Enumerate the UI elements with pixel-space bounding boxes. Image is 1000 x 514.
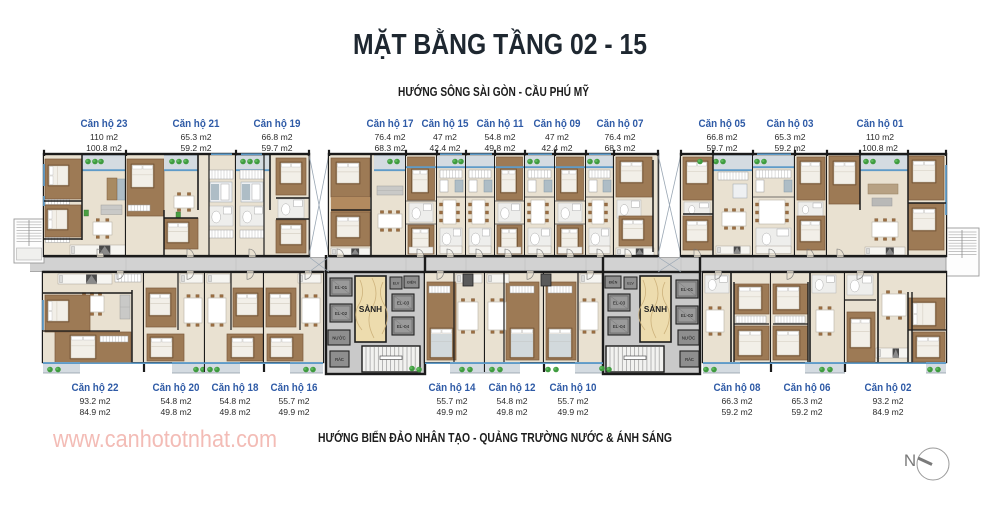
svg-text:Căn hộ 01: Căn hộ 01 (857, 118, 904, 130)
svg-text:EL-02: EL-02 (335, 311, 348, 316)
svg-text:Căn hộ 07: Căn hộ 07 (597, 118, 644, 130)
svg-text:EL-04: EL-04 (397, 324, 410, 329)
svg-text:49.8 m2: 49.8 m2 (496, 407, 527, 417)
svg-text:Căn hộ 05: Căn hộ 05 (699, 118, 746, 130)
svg-text:100.8 m2: 100.8 m2 (862, 143, 898, 153)
svg-text:76.4 m2: 76.4 m2 (374, 132, 405, 142)
svg-text:NƯỜC: NƯỜC (332, 336, 345, 341)
svg-text:76.4 m2: 76.4 m2 (604, 132, 635, 142)
svg-text:49.9 m2: 49.9 m2 (557, 407, 588, 417)
svg-text:47 m2: 47 m2 (545, 132, 569, 142)
svg-text:55.7 m2: 55.7 m2 (557, 396, 588, 406)
svg-text:55.7 m2: 55.7 m2 (436, 396, 467, 406)
svg-text:ĐIỆN: ĐIỆN (407, 280, 416, 285)
svg-text:SẢNH: SẢNH (359, 303, 382, 314)
svg-text:SẢNH: SẢNH (644, 303, 667, 314)
svg-text:MẶT BẰNG TẦNG 02 - 15: MẶT BẰNG TẦNG 02 - 15 (353, 27, 647, 61)
svg-text:N: N (904, 451, 916, 470)
svg-text:55.7 m2: 55.7 m2 (278, 396, 309, 406)
svg-text:47 m2: 47 m2 (433, 132, 457, 142)
svg-text:Căn hộ 14: Căn hộ 14 (429, 382, 477, 394)
svg-text:EL-03: EL-03 (613, 300, 626, 305)
svg-text:54.8 m2: 54.8 m2 (496, 396, 527, 406)
svg-text:65.3 m2: 65.3 m2 (791, 396, 822, 406)
svg-text:Căn hộ 09: Căn hộ 09 (534, 118, 581, 130)
svg-text:Căn hộ 21: Căn hộ 21 (173, 118, 220, 130)
svg-text:ĐIỆN: ĐIỆN (609, 280, 618, 285)
svg-text:ELV: ELV (627, 282, 634, 286)
svg-text:Căn hộ 20: Căn hộ 20 (153, 382, 200, 394)
svg-text:66.3 m2: 66.3 m2 (721, 396, 752, 406)
svg-text:66.8 m2: 66.8 m2 (261, 132, 292, 142)
svg-text:Căn hộ 06: Căn hộ 06 (784, 382, 831, 394)
svg-text:59.7 m2: 59.7 m2 (706, 143, 737, 153)
svg-text:Căn hộ 12: Căn hộ 12 (489, 382, 536, 394)
svg-text:110 m2: 110 m2 (866, 132, 894, 142)
svg-text:59.2 m2: 59.2 m2 (774, 143, 805, 153)
svg-text:EL-03: EL-03 (397, 300, 410, 305)
svg-text:59.2 m2: 59.2 m2 (791, 407, 822, 417)
svg-text:Căn hộ 10: Căn hộ 10 (550, 382, 597, 394)
svg-text:49.8 m2: 49.8 m2 (160, 407, 191, 417)
svg-text:66.8 m2: 66.8 m2 (706, 132, 737, 142)
svg-text:RÁC: RÁC (685, 357, 694, 362)
svg-text:42.4 m2: 42.4 m2 (429, 143, 460, 153)
svg-text:49.9 m2: 49.9 m2 (436, 407, 467, 417)
svg-text:59.2 m2: 59.2 m2 (180, 143, 211, 153)
svg-text:49.8 m2: 49.8 m2 (219, 407, 250, 417)
svg-text:68.3 m2: 68.3 m2 (604, 143, 635, 153)
svg-text:Căn hộ 02: Căn hộ 02 (865, 382, 912, 394)
svg-text:EL-04: EL-04 (613, 324, 626, 329)
svg-text:Căn hộ 08: Căn hộ 08 (714, 382, 761, 394)
svg-text:Căn hộ 18: Căn hộ 18 (212, 382, 259, 394)
svg-text:93.2 m2: 93.2 m2 (79, 396, 110, 406)
svg-text:HƯỚNG BIỂN ĐẢO NHÂN TẠO - QUẢN: HƯỚNG BIỂN ĐẢO NHÂN TẠO - QUẢNG TRƯỜNG N… (318, 430, 672, 445)
svg-text:Căn hộ 16: Căn hộ 16 (271, 382, 318, 394)
svg-text:54.8 m2: 54.8 m2 (219, 396, 250, 406)
svg-text:59.7 m2: 59.7 m2 (261, 143, 292, 153)
svg-text:49.8 m2: 49.8 m2 (484, 143, 515, 153)
svg-text:59.2 m2: 59.2 m2 (721, 407, 752, 417)
svg-text:RÁC: RÁC (335, 357, 344, 362)
svg-text:110 m2: 110 m2 (90, 132, 118, 142)
svg-text:Căn hộ 11: Căn hộ 11 (477, 118, 524, 130)
svg-text:Căn hộ 17: Căn hộ 17 (367, 118, 414, 130)
svg-text:42.4 m2: 42.4 m2 (541, 143, 572, 153)
svg-text:Căn hộ 15: Căn hộ 15 (422, 118, 469, 130)
svg-text:84.9 m2: 84.9 m2 (79, 407, 110, 417)
svg-text:65.3 m2: 65.3 m2 (774, 132, 805, 142)
svg-text:EL-01: EL-01 (335, 285, 348, 290)
svg-text:EL-01: EL-01 (681, 287, 694, 292)
svg-text:www.canhototnhat.com: www.canhototnhat.com (52, 426, 277, 453)
svg-text:Căn hộ 03: Căn hộ 03 (767, 118, 814, 130)
svg-text:EL-02: EL-02 (681, 313, 694, 318)
svg-text:HƯỚNG SÔNG SÀI GÒN - CẦU PHÚ M: HƯỚNG SÔNG SÀI GÒN - CẦU PHÚ MỸ (398, 84, 590, 99)
svg-text:49.9 m2: 49.9 m2 (278, 407, 309, 417)
svg-text:Căn hộ 23: Căn hộ 23 (81, 118, 128, 130)
svg-text:65.3 m2: 65.3 m2 (180, 132, 211, 142)
svg-text:ELV: ELV (393, 282, 400, 286)
svg-text:Căn hộ 22: Căn hộ 22 (72, 382, 119, 394)
svg-text:84.9 m2: 84.9 m2 (872, 407, 903, 417)
svg-text:Căn hộ 19: Căn hộ 19 (254, 118, 301, 130)
svg-text:54.8 m2: 54.8 m2 (484, 132, 515, 142)
svg-text:93.2 m2: 93.2 m2 (872, 396, 903, 406)
svg-text:68.3 m2: 68.3 m2 (374, 143, 405, 153)
svg-text:NƯỜC: NƯỜC (682, 336, 695, 341)
svg-text:100.8 m2: 100.8 m2 (86, 143, 122, 153)
svg-text:54.8 m2: 54.8 m2 (160, 396, 191, 406)
